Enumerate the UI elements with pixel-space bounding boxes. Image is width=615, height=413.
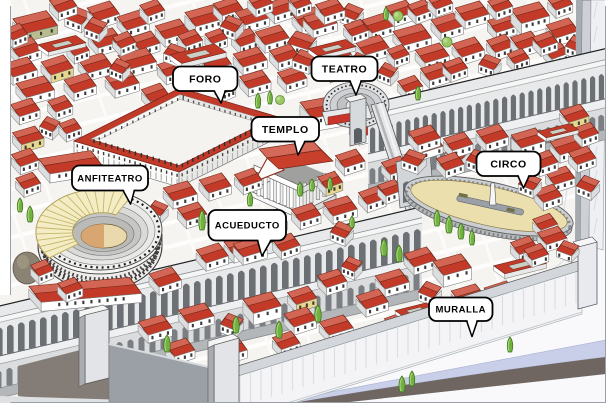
- svg-text:TEATRO: TEATRO: [322, 64, 367, 76]
- svg-text:ANFITEATRO: ANFITEATRO: [77, 173, 143, 184]
- svg-text:MURALLA: MURALLA: [436, 305, 486, 316]
- svg-text:CIRCO: CIRCO: [490, 159, 526, 171]
- svg-text:TEMPLO: TEMPLO: [262, 124, 309, 136]
- svg-text:FORO: FORO: [189, 74, 221, 86]
- svg-text:ACUEDUCTO: ACUEDUCTO: [215, 221, 280, 232]
